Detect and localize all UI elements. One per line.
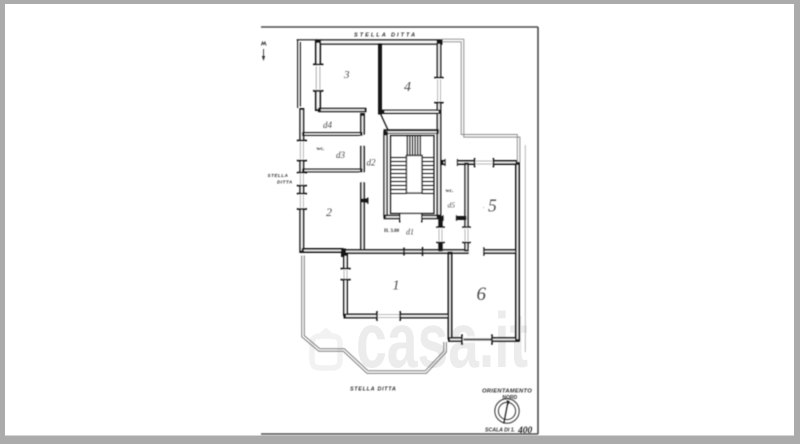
svg-text:H. 3.00: H. 3.00: [384, 229, 400, 234]
svg-text:NORD: NORD: [503, 395, 518, 401]
svg-text:5: 5: [488, 196, 497, 216]
svg-text:d1: d1: [406, 228, 414, 237]
svg-text:3: 3: [343, 69, 350, 81]
svg-text:DITTA: DITTA: [378, 387, 397, 393]
svg-text:4: 4: [404, 80, 411, 95]
svg-text:.: .: [483, 204, 485, 210]
svg-text:400: 400: [517, 426, 533, 436]
svg-text:wc.: wc.: [317, 146, 325, 152]
svg-text:wc.: wc.: [446, 188, 454, 194]
svg-text:DITTA: DITTA: [391, 33, 417, 39]
svg-text:ORIENTAMENTO: ORIENTAMENTO: [482, 389, 532, 395]
svg-text:STELLA: STELLA: [268, 173, 289, 178]
svg-text:STELLA: STELLA: [350, 387, 375, 393]
svg-text:d4: d4: [323, 120, 333, 130]
svg-text:2: 2: [326, 205, 332, 219]
svg-text:STELLA: STELLA: [354, 33, 388, 39]
svg-text:d5: d5: [448, 201, 456, 210]
svg-text:DITTA: DITTA: [277, 180, 293, 185]
svg-text:d2: d2: [367, 158, 377, 168]
svg-text:d3: d3: [336, 150, 346, 160]
svg-text:1: 1: [393, 279, 400, 294]
svg-text:SCALA DI 1.: SCALA DI 1.: [485, 428, 515, 434]
svg-text:6: 6: [477, 284, 487, 305]
